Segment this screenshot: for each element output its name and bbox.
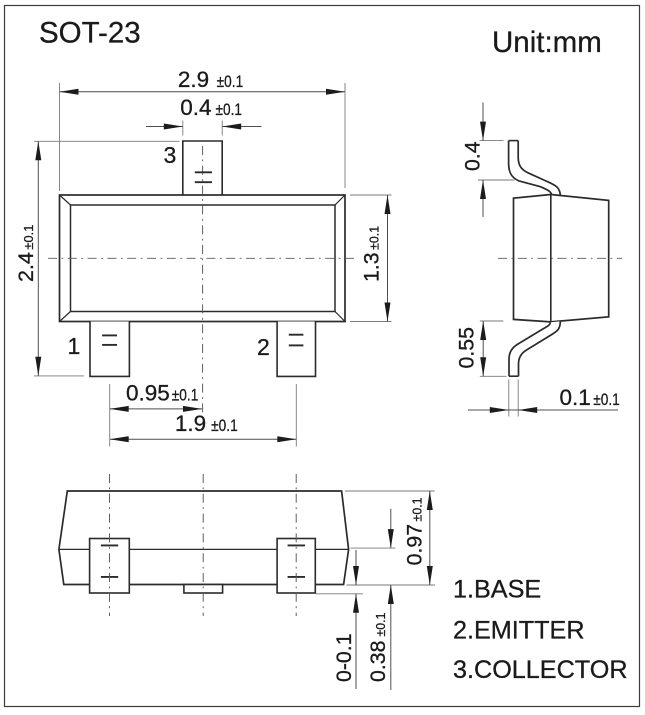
svg-text:Unit:mm: Unit:mm bbox=[492, 26, 602, 59]
svg-text:1: 1 bbox=[68, 333, 81, 359]
svg-text:3: 3 bbox=[164, 142, 177, 168]
svg-text:0.55: 0.55 bbox=[455, 327, 479, 368]
svg-text:2: 2 bbox=[257, 334, 270, 360]
svg-text:0-0.1: 0-0.1 bbox=[332, 633, 356, 682]
svg-text:SOT-23: SOT-23 bbox=[39, 17, 141, 50]
svg-text:3.COLLECTOR: 3.COLLECTOR bbox=[453, 656, 628, 684]
svg-text:2.EMITTER: 2.EMITTER bbox=[453, 616, 585, 644]
svg-text:1.BASE: 1.BASE bbox=[453, 575, 541, 603]
svg-text:0.4: 0.4 bbox=[461, 141, 485, 171]
